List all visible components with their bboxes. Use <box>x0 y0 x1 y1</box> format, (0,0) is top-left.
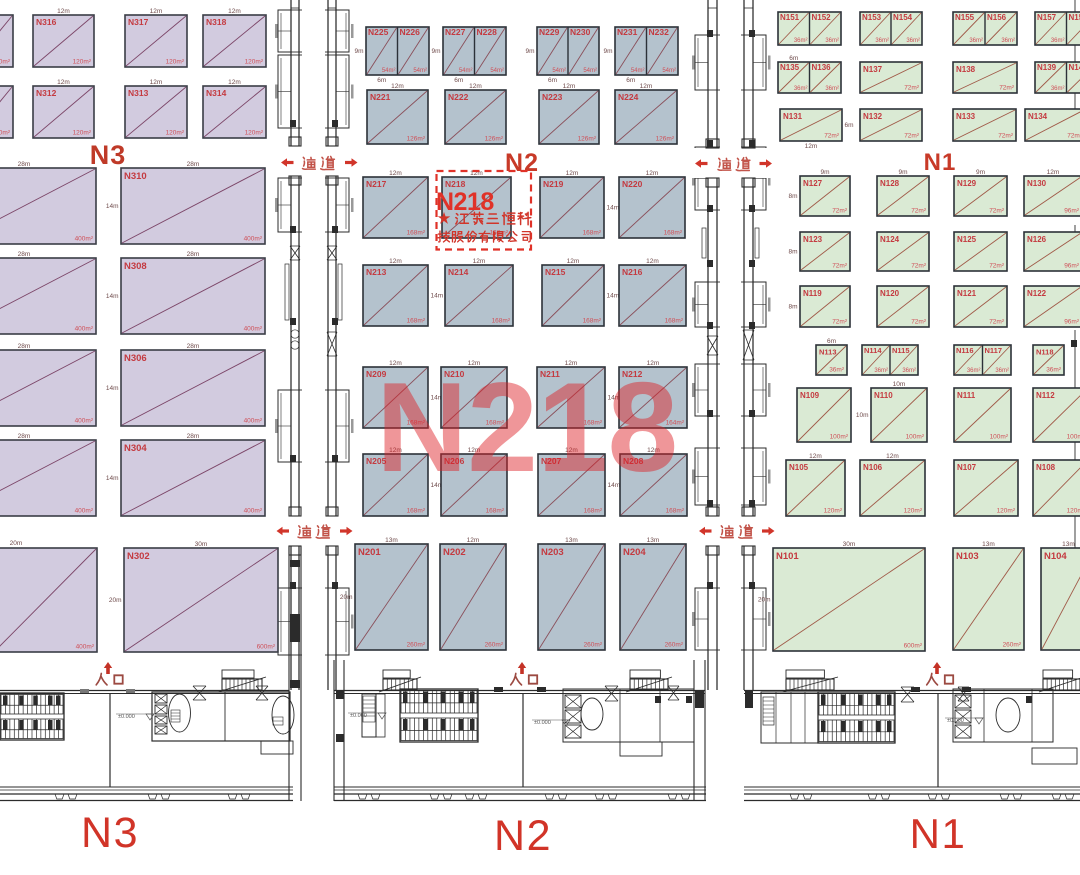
svg-text:N158: N158 <box>1069 13 1080 22</box>
svg-text:14m: 14m <box>106 475 119 482</box>
svg-text:400m²: 400m² <box>75 326 94 333</box>
svg-text:N306: N306 <box>124 353 147 364</box>
svg-text:20m: 20m <box>10 540 23 547</box>
svg-text:54m²: 54m² <box>662 68 676 74</box>
svg-text:±0.000: ±0.000 <box>947 718 964 724</box>
svg-text:54m²: 54m² <box>459 68 473 74</box>
svg-text:14m: 14m <box>431 293 444 300</box>
svg-text:N201: N201 <box>358 547 381 558</box>
svg-text:6m: 6m <box>626 77 635 84</box>
svg-text:12m: 12m <box>469 83 482 90</box>
svg-text:N302: N302 <box>127 551 150 562</box>
svg-text:600m²: 600m² <box>904 643 923 650</box>
svg-text:N222: N222 <box>448 92 469 102</box>
svg-text:9m: 9m <box>603 48 612 55</box>
svg-text:72m²: 72m² <box>989 319 1005 326</box>
svg-text:N139: N139 <box>1037 63 1057 72</box>
svg-text:20m: 20m <box>340 594 353 601</box>
svg-text:72m²: 72m² <box>832 208 848 215</box>
svg-text:28m: 28m <box>18 161 31 168</box>
svg-text:72m²: 72m² <box>904 133 920 140</box>
svg-text:6m: 6m <box>789 55 798 62</box>
svg-text:72m²: 72m² <box>1067 133 1080 140</box>
svg-text:N203: N203 <box>541 547 564 558</box>
svg-text:400m²: 400m² <box>244 236 263 243</box>
svg-text:12m: 12m <box>391 83 404 90</box>
svg-text:N130: N130 <box>1027 179 1047 188</box>
svg-text:N131: N131 <box>783 112 803 121</box>
svg-text:N304: N304 <box>124 443 147 454</box>
svg-text:6m: 6m <box>845 122 854 129</box>
svg-text:12m: 12m <box>473 258 486 265</box>
svg-text:±0.000: ±0.000 <box>534 720 551 726</box>
svg-text:N3: N3 <box>81 809 139 857</box>
svg-text:N101: N101 <box>776 551 799 562</box>
svg-text:N107: N107 <box>957 463 977 472</box>
svg-text:400m²: 400m² <box>244 418 263 425</box>
svg-text:28m: 28m <box>187 251 200 258</box>
svg-text:600m²: 600m² <box>257 644 276 651</box>
svg-text:72m²: 72m² <box>911 208 927 215</box>
svg-text:260m²: 260m² <box>407 642 426 649</box>
svg-text:72m²: 72m² <box>832 263 848 270</box>
svg-text:100m²: 100m² <box>990 434 1009 441</box>
svg-text:120m²: 120m² <box>904 508 923 515</box>
svg-text:0m²: 0m² <box>0 130 11 137</box>
svg-text:120m²: 120m² <box>73 59 92 66</box>
svg-text:260m²: 260m² <box>1003 642 1022 649</box>
svg-text:N135: N135 <box>780 63 800 72</box>
svg-text:12m: 12m <box>640 83 653 90</box>
svg-text:54m²: 54m² <box>583 68 597 74</box>
svg-text:12m: 12m <box>646 170 659 177</box>
svg-text:N228: N228 <box>477 27 498 37</box>
svg-text:54m²: 54m² <box>552 68 566 74</box>
svg-text:N129: N129 <box>957 179 977 188</box>
svg-text:54m²: 54m² <box>382 68 396 74</box>
svg-text:N105: N105 <box>789 463 809 472</box>
svg-text:N117: N117 <box>985 346 1003 355</box>
svg-text:N126: N126 <box>1027 235 1047 244</box>
svg-text:12m: 12m <box>805 143 818 150</box>
svg-text:9m: 9m <box>525 48 534 55</box>
svg-text:N229: N229 <box>539 27 560 37</box>
svg-text:N219: N219 <box>543 179 564 189</box>
svg-text:28m: 28m <box>18 343 31 350</box>
svg-text:72m²: 72m² <box>911 263 927 270</box>
svg-text:9m: 9m <box>820 169 829 176</box>
svg-text:28m: 28m <box>187 433 200 440</box>
svg-text:260m²: 260m² <box>584 642 603 649</box>
svg-text:36m²: 36m² <box>875 38 889 44</box>
svg-text:126m²: 126m² <box>485 136 504 143</box>
svg-text:54m²: 54m² <box>413 68 427 74</box>
svg-text:6m: 6m <box>827 338 836 345</box>
svg-text:120m²: 120m² <box>997 508 1016 515</box>
svg-text:N217: N217 <box>366 179 387 189</box>
svg-text:N312: N312 <box>36 88 57 98</box>
svg-text:N214: N214 <box>448 267 469 277</box>
svg-text:28m: 28m <box>187 343 200 350</box>
svg-text:N109: N109 <box>800 391 820 400</box>
svg-text:N202: N202 <box>443 547 466 558</box>
svg-text:N2: N2 <box>494 812 552 860</box>
svg-text:10m: 10m <box>893 381 906 388</box>
svg-text:N218: N218 <box>376 356 678 498</box>
svg-text:9m: 9m <box>431 48 440 55</box>
svg-text:N153: N153 <box>862 13 882 22</box>
svg-text:N124: N124 <box>880 235 900 244</box>
svg-text:N128: N128 <box>880 179 900 188</box>
svg-text:14m: 14m <box>106 203 119 210</box>
svg-text:13m: 13m <box>647 537 660 544</box>
svg-text:12m: 12m <box>566 170 579 177</box>
svg-text:N317: N317 <box>128 17 149 27</box>
svg-text:100m²: 100m² <box>1067 434 1080 441</box>
svg-text:N220: N220 <box>622 179 643 189</box>
svg-text:N132: N132 <box>863 112 883 121</box>
svg-text:±0.000: ±0.000 <box>118 714 135 720</box>
svg-text:400m²: 400m² <box>75 418 94 425</box>
svg-text:36m²: 36m² <box>794 86 808 92</box>
svg-text:36m²: 36m² <box>829 367 845 374</box>
svg-text:400m²: 400m² <box>75 508 94 515</box>
svg-text:N134: N134 <box>1028 112 1048 121</box>
svg-text:N213: N213 <box>366 267 387 277</box>
svg-text:28m: 28m <box>18 251 31 258</box>
svg-text:12m: 12m <box>57 8 70 15</box>
svg-text:N224: N224 <box>618 92 639 102</box>
svg-text:126m²: 126m² <box>656 136 675 143</box>
svg-text:168m²: 168m² <box>665 318 684 325</box>
svg-text:N215: N215 <box>545 267 566 277</box>
svg-text:72m²: 72m² <box>911 319 927 326</box>
svg-text:±0.000: ±0.000 <box>350 713 367 719</box>
svg-text:72m²: 72m² <box>904 85 920 92</box>
svg-text:10m: 10m <box>856 412 869 419</box>
svg-text:N152: N152 <box>812 13 832 22</box>
svg-text:168m²: 168m² <box>583 230 602 237</box>
svg-text:72m²: 72m² <box>989 208 1005 215</box>
svg-text:96m²: 96m² <box>1064 263 1080 270</box>
svg-text:N137: N137 <box>863 65 883 74</box>
svg-text:36m²: 36m² <box>794 38 808 44</box>
svg-text:N121: N121 <box>957 289 977 298</box>
svg-text:8m: 8m <box>788 304 797 311</box>
svg-text:N112: N112 <box>1036 391 1055 400</box>
svg-text:36m²: 36m² <box>1051 38 1065 44</box>
svg-text:N111: N111 <box>957 391 976 400</box>
svg-text:168m²: 168m² <box>407 318 426 325</box>
svg-text:400m²: 400m² <box>244 326 263 333</box>
svg-text:20m: 20m <box>758 597 771 604</box>
svg-text:12m: 12m <box>57 79 70 86</box>
svg-text:8m: 8m <box>788 249 797 256</box>
svg-text:30m: 30m <box>843 541 856 548</box>
svg-text:28m: 28m <box>187 161 200 168</box>
svg-text:N1: N1 <box>910 810 967 857</box>
svg-text:36m²: 36m² <box>969 38 983 44</box>
svg-text:N230: N230 <box>570 27 591 37</box>
svg-text:400m²: 400m² <box>75 236 94 243</box>
svg-text:N119: N119 <box>803 289 822 298</box>
svg-text:N108: N108 <box>1036 463 1056 472</box>
svg-text:N154: N154 <box>893 13 913 22</box>
svg-text:120m²: 120m² <box>245 130 264 137</box>
svg-text:N204: N204 <box>623 547 646 558</box>
svg-text:168m²: 168m² <box>664 230 683 237</box>
svg-text:N226: N226 <box>400 27 421 37</box>
svg-text:20m: 20m <box>109 597 122 604</box>
svg-text:12m: 12m <box>228 8 241 15</box>
svg-text:N310: N310 <box>124 171 147 182</box>
svg-text:126m²: 126m² <box>578 136 597 143</box>
svg-text:100m²: 100m² <box>830 434 849 441</box>
svg-text:12m: 12m <box>150 79 163 86</box>
svg-text:12m: 12m <box>389 170 402 177</box>
svg-text:400m²: 400m² <box>76 644 95 651</box>
svg-text:N138: N138 <box>956 65 976 74</box>
svg-text:N110: N110 <box>874 391 893 400</box>
svg-text:13m: 13m <box>565 537 578 544</box>
svg-text:N316: N316 <box>36 17 57 27</box>
svg-text:6m: 6m <box>377 77 386 84</box>
svg-text:N114: N114 <box>864 346 882 355</box>
svg-text:N221: N221 <box>370 92 391 102</box>
svg-text:168m²: 168m² <box>486 508 505 515</box>
svg-text:12m: 12m <box>809 453 822 460</box>
svg-text:6m: 6m <box>548 77 557 84</box>
svg-text:400m²: 400m² <box>244 508 263 515</box>
svg-text:8m: 8m <box>788 193 797 200</box>
svg-text:36m²: 36m² <box>825 38 839 44</box>
svg-text:0m²: 0m² <box>0 59 11 66</box>
svg-text:N113: N113 <box>819 347 837 356</box>
svg-text:36m²: 36m² <box>902 368 916 374</box>
svg-text:12m: 12m <box>563 83 576 90</box>
svg-text:36m²: 36m² <box>874 368 888 374</box>
svg-text:N232: N232 <box>649 27 670 37</box>
svg-text:96m²: 96m² <box>1064 208 1080 215</box>
svg-text:120m²: 120m² <box>166 59 185 66</box>
svg-text:12m: 12m <box>1047 169 1060 176</box>
svg-text:36m²: 36m² <box>995 368 1009 374</box>
svg-text:N104: N104 <box>1044 551 1067 562</box>
svg-text:N1: N1 <box>924 149 957 176</box>
svg-text:168m²: 168m² <box>407 508 426 515</box>
svg-text:N120: N120 <box>880 289 900 298</box>
svg-text:120m²: 120m² <box>824 508 843 515</box>
svg-text:14m: 14m <box>607 293 620 300</box>
svg-text:N155: N155 <box>955 13 975 22</box>
svg-text:168m²: 168m² <box>583 318 602 325</box>
svg-text:N136: N136 <box>812 63 832 72</box>
svg-text:28m: 28m <box>18 433 31 440</box>
svg-text:54m²: 54m² <box>631 68 645 74</box>
svg-text:N156: N156 <box>987 13 1007 22</box>
svg-text:12m: 12m <box>228 79 241 86</box>
svg-text:168m²: 168m² <box>584 508 603 515</box>
svg-text:126m²: 126m² <box>407 136 426 143</box>
svg-text:12m: 12m <box>150 8 163 15</box>
svg-text:72m²: 72m² <box>998 133 1014 140</box>
svg-text:13m: 13m <box>1062 541 1075 548</box>
svg-text:72m²: 72m² <box>824 133 840 140</box>
svg-text:120m²: 120m² <box>245 59 264 66</box>
svg-text:12m: 12m <box>567 258 580 265</box>
svg-text:N115: N115 <box>892 346 910 355</box>
svg-text:72m²: 72m² <box>999 85 1015 92</box>
svg-text:N314: N314 <box>206 88 227 98</box>
svg-text:260m²: 260m² <box>665 642 684 649</box>
svg-text:N106: N106 <box>863 463 883 472</box>
svg-text:72m²: 72m² <box>832 319 848 326</box>
svg-text:N151: N151 <box>780 13 800 22</box>
svg-text:54m²: 54m² <box>490 68 504 74</box>
svg-text:12m: 12m <box>646 258 659 265</box>
svg-text:N133: N133 <box>956 112 976 121</box>
svg-text:260m²: 260m² <box>485 642 504 649</box>
svg-text:30m: 30m <box>195 541 208 548</box>
svg-text:12m: 12m <box>389 258 402 265</box>
svg-text:120m²: 120m² <box>73 130 92 137</box>
svg-text:96m²: 96m² <box>1064 319 1080 326</box>
svg-text:N216: N216 <box>622 267 643 277</box>
svg-text:N116: N116 <box>956 346 974 355</box>
svg-text:N218: N218 <box>436 188 494 216</box>
svg-text:9m: 9m <box>976 169 985 176</box>
svg-text:13m: 13m <box>982 541 995 548</box>
svg-text:120m²: 120m² <box>1067 508 1080 515</box>
svg-text:13m: 13m <box>385 537 398 544</box>
svg-text:36m²: 36m² <box>1051 86 1065 92</box>
svg-text:168m²: 168m² <box>407 230 426 237</box>
svg-text:168m²: 168m² <box>492 318 511 325</box>
svg-text:N3: N3 <box>90 140 127 170</box>
svg-text:N223: N223 <box>542 92 563 102</box>
svg-text:168m²: 168m² <box>666 508 685 515</box>
svg-text:12m: 12m <box>886 453 899 460</box>
svg-text:36m²: 36m² <box>1046 367 1062 374</box>
svg-text:N118: N118 <box>1036 347 1054 356</box>
svg-text:N308: N308 <box>124 261 147 272</box>
svg-text:N123: N123 <box>803 235 823 244</box>
svg-text:6m: 6m <box>454 77 463 84</box>
svg-text:N140: N140 <box>1069 63 1080 72</box>
svg-text:N227: N227 <box>445 27 466 37</box>
svg-text:36m²: 36m² <box>825 86 839 92</box>
svg-text:12m: 12m <box>467 537 480 544</box>
svg-text:72m²: 72m² <box>989 263 1005 270</box>
svg-text:N127: N127 <box>803 179 823 188</box>
svg-text:N318: N318 <box>206 17 227 27</box>
svg-text:N122: N122 <box>1027 289 1047 298</box>
svg-text:N313: N313 <box>128 88 149 98</box>
svg-text:N231: N231 <box>617 27 638 37</box>
svg-text:N2: N2 <box>505 149 539 177</box>
svg-text:N225: N225 <box>368 27 389 37</box>
svg-text:100m²: 100m² <box>906 434 925 441</box>
svg-text:14m: 14m <box>106 385 119 392</box>
svg-text:14m: 14m <box>607 205 620 212</box>
svg-text:N103: N103 <box>956 551 979 562</box>
svg-text:36m²: 36m² <box>1001 38 1015 44</box>
svg-text:9m: 9m <box>354 48 363 55</box>
svg-text:36m²: 36m² <box>906 38 920 44</box>
svg-text:N125: N125 <box>957 235 977 244</box>
svg-text:14m: 14m <box>106 293 119 300</box>
svg-text:9m: 9m <box>898 169 907 176</box>
svg-text:N157: N157 <box>1037 13 1057 22</box>
svg-text:120m²: 120m² <box>166 130 185 137</box>
svg-text:36m²: 36m² <box>967 368 981 374</box>
